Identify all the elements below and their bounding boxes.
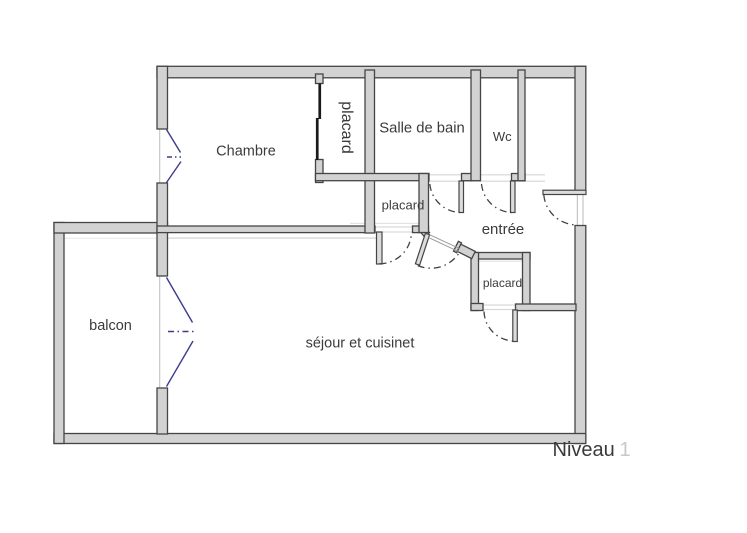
svg-text:Niveau1: Niveau1 — [553, 439, 631, 461]
svg-text:placard: placard — [382, 198, 425, 213]
svg-text:placard: placard — [483, 276, 522, 290]
svg-text:placard: placard — [338, 101, 355, 153]
svg-text:Wc: Wc — [493, 129, 512, 144]
svg-text:balcon: balcon — [89, 318, 132, 334]
svg-text:séjour et cuisinet: séjour et cuisinet — [306, 336, 415, 352]
svg-text:Chambre: Chambre — [216, 144, 276, 160]
svg-text:entrée: entrée — [482, 221, 525, 238]
svg-text:Salle de bain: Salle de bain — [379, 121, 465, 137]
